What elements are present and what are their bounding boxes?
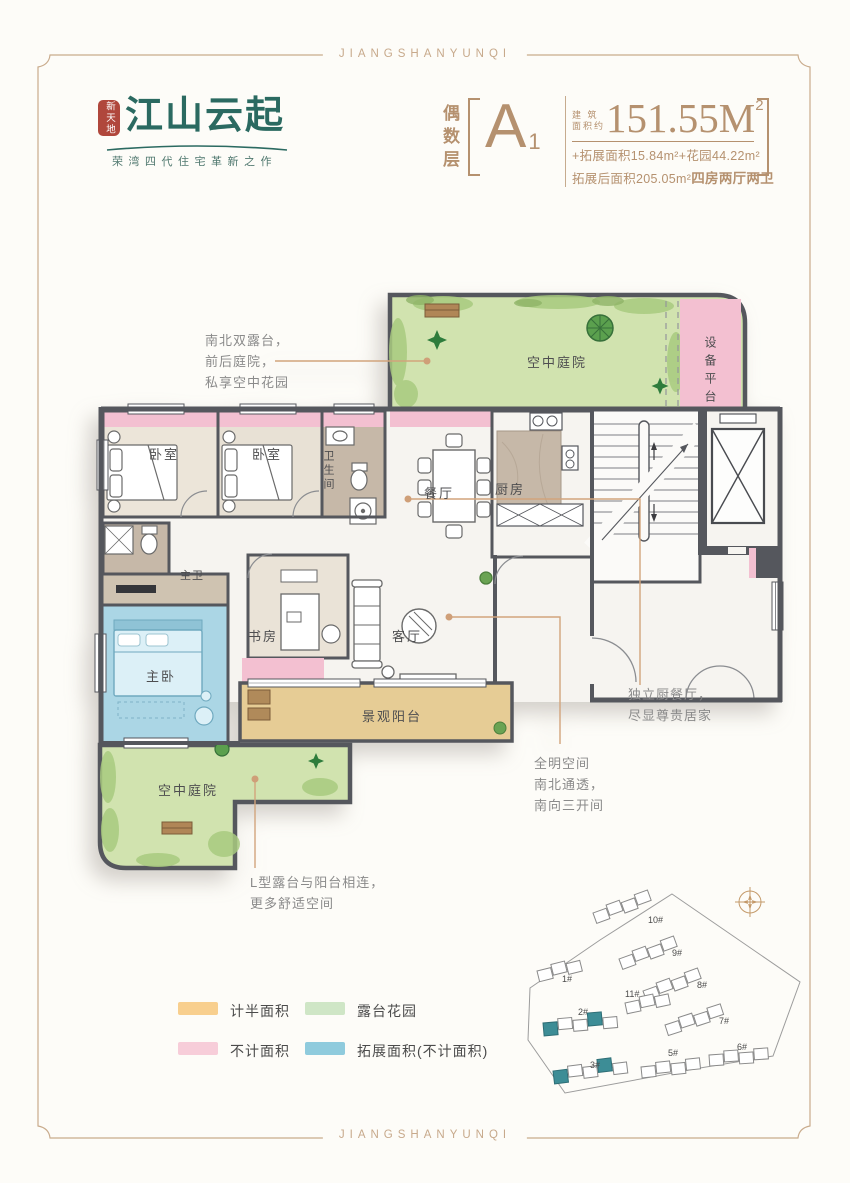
compass-icon	[735, 887, 765, 917]
legend-label-extension: 拓展面积(不计面积)	[357, 1041, 488, 1061]
unit-letter: A	[485, 94, 526, 160]
project-name: 江山云起	[125, 84, 295, 139]
label-master-bath: 主卫	[180, 567, 204, 583]
building-5	[641, 1058, 701, 1078]
dressing-strip	[100, 574, 228, 605]
unit-name: A 1	[485, 94, 541, 160]
garden-bench-icon	[425, 304, 459, 317]
legend-swatch-uncounted	[178, 1042, 218, 1055]
annotation-terrace: L型露台与阳台相连， 更多舒适空间	[250, 872, 384, 914]
header-brand: JIANGSHANYUNQI	[323, 48, 527, 60]
legend-label-half-area: 计半面积	[230, 1001, 290, 1021]
annotation-line: 南北通透，	[534, 774, 604, 795]
total-area-value: 拓展后面积205.05m²	[572, 172, 691, 186]
sitemap-label-11: 11#	[625, 989, 639, 999]
sitemap-label-10: 10#	[648, 915, 663, 925]
label-dining: 餐厅	[424, 483, 454, 502]
legend-swatch-terrace-garden	[305, 1002, 345, 1015]
annotation-line: 独立厨餐厅，	[628, 684, 712, 705]
label-study: 书房	[248, 626, 278, 645]
label-bedroom1: 卧室	[149, 444, 179, 463]
label-balcony: 景观阳台	[362, 706, 422, 725]
sitemap-label-2: 2#	[578, 1007, 588, 1017]
label-equipment-platform: 设备平台	[702, 336, 719, 408]
label-bathroom: 卫生间	[320, 450, 336, 492]
sitemap-label-1: 1#	[562, 974, 572, 984]
floor-type-label: 偶数层	[437, 104, 462, 176]
stairwell	[590, 409, 700, 582]
annotation-line: L型露台与阳台相连，	[250, 872, 384, 893]
built-area-value: 151.55M	[606, 96, 755, 140]
label-master-bedroom: 主卧	[146, 666, 176, 685]
building-10	[592, 890, 652, 923]
project-tagline: 荣湾四代住宅革新之作	[112, 153, 277, 169]
sitemap-label-5: 5#	[668, 1048, 678, 1058]
area-divider-rule	[572, 141, 754, 142]
brochure-page: JIANGSHANYUNQI JIANGSHANYUNQI 新天地 江山云起 荣…	[0, 0, 850, 1183]
annotation-line: 前后庭院，	[205, 351, 289, 372]
building-7	[664, 1004, 724, 1036]
area-prefix-line2: 面积约	[572, 121, 606, 132]
legend-label-uncounted: 不计面积	[230, 1041, 290, 1061]
master-bath	[103, 523, 169, 574]
annotation-line: 南北双露台，	[205, 330, 289, 351]
bracket-left	[468, 98, 480, 176]
total-area-line: 拓展后面积205.05m²四房两厅两卫	[572, 167, 774, 187]
south-courtyard	[100, 742, 350, 868]
label-south-courtyard: 空中庭院	[158, 780, 218, 799]
building-9	[618, 936, 678, 969]
legend-label-terrace-garden: 露台花园	[357, 1001, 417, 1021]
logo-seal: 新天地	[98, 100, 120, 136]
logo-underline-swoosh	[104, 142, 290, 152]
footer-brand: JIANGSHANYUNQI	[323, 1129, 527, 1141]
legend-swatch-extension	[305, 1042, 345, 1055]
extension-area-line: +拓展面积15.84m²+花园44.22m²	[572, 145, 774, 164]
annotation-north-terrace: 南北双露台， 前后庭院， 私享空中花园	[205, 330, 289, 393]
site-plan	[515, 875, 815, 1115]
annotation-living: 全明空间 南北通透， 南向三开间	[534, 753, 604, 816]
building-1	[536, 957, 582, 981]
annotation-kitchen-dining: 独立厨餐厅， 尽显尊贵居家	[628, 684, 712, 726]
unit-number: 1	[528, 129, 540, 155]
bracket-right	[757, 98, 769, 176]
sitemap-label-3: 3#	[590, 1060, 600, 1070]
area-prefix: 建 筑 面积约	[572, 110, 606, 132]
annotation-line: 私享空中花园	[205, 372, 289, 393]
label-bedroom2: 卧室	[252, 444, 282, 463]
sitemap-label-6: 6#	[737, 1042, 747, 1052]
sitemap-label-8: 8#	[697, 980, 707, 990]
annotation-line: 更多舒适空间	[250, 893, 384, 914]
sitemap-label-7: 7#	[719, 1016, 729, 1026]
legend-swatch-half-area	[178, 1002, 218, 1015]
label-living: 客厅	[392, 626, 422, 645]
area-prefix-line1: 建 筑	[572, 110, 606, 121]
annotation-line: 尽显尊贵居家	[628, 705, 712, 726]
annotation-line: 全明空间	[534, 753, 604, 774]
label-kitchen: 厨房	[495, 479, 525, 498]
sitemap-label-9: 9#	[672, 948, 682, 958]
floor-plan	[88, 282, 788, 922]
label-north-courtyard: 空中庭院	[527, 352, 587, 371]
area-details: 建 筑 面积约 151.55M 2 +拓展面积15.84m²+花园44.22m²…	[565, 96, 774, 187]
annotation-line: 南向三开间	[534, 795, 604, 816]
